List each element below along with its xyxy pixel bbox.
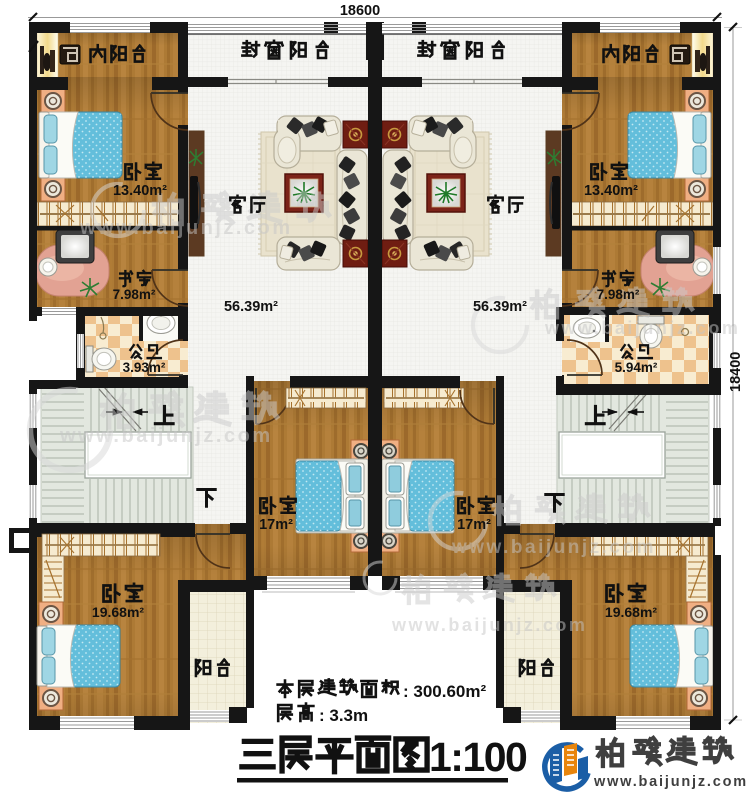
svg-text:5.94m²: 5.94m²: [615, 360, 658, 375]
svg-text:www.baijunjz.com: www.baijunjz.com: [544, 318, 740, 338]
svg-text:3.93m²: 3.93m²: [123, 360, 166, 375]
svg-text:18600: 18600: [340, 3, 380, 19]
svg-text:www.baijunjz.com: www.baijunjz.com: [451, 537, 656, 558]
svg-text:56.39m²: 56.39m²: [473, 299, 527, 315]
svg-text:56.39m²: 56.39m²: [224, 299, 278, 315]
svg-text:13.40m²: 13.40m²: [584, 183, 638, 199]
svg-text:www.baijunjz.com: www.baijunjz.com: [79, 217, 293, 239]
svg-text:www.baijunjz.com: www.baijunjz.com: [391, 615, 587, 635]
svg-text:www.baijunjz.com: www.baijunjz.com: [59, 425, 273, 447]
svg-text:: 300.60m²: : 300.60m²: [403, 682, 486, 701]
svg-text:17m²: 17m²: [457, 517, 491, 533]
svg-text:7.98m²: 7.98m²: [113, 287, 156, 302]
svg-text:19.68m²: 19.68m²: [605, 604, 657, 620]
svg-text:18400: 18400: [728, 352, 744, 392]
svg-text:www.baijunjz.com: www.baijunjz.com: [593, 774, 748, 790]
svg-text:: 3.3m: : 3.3m: [319, 706, 368, 725]
svg-text:13.40m²: 13.40m²: [113, 183, 167, 199]
svg-text:17m²: 17m²: [259, 517, 293, 533]
svg-text:7.98m²: 7.98m²: [597, 287, 640, 302]
svg-text:1:100: 1:100: [429, 734, 527, 780]
svg-text:19.68m²: 19.68m²: [92, 604, 144, 620]
